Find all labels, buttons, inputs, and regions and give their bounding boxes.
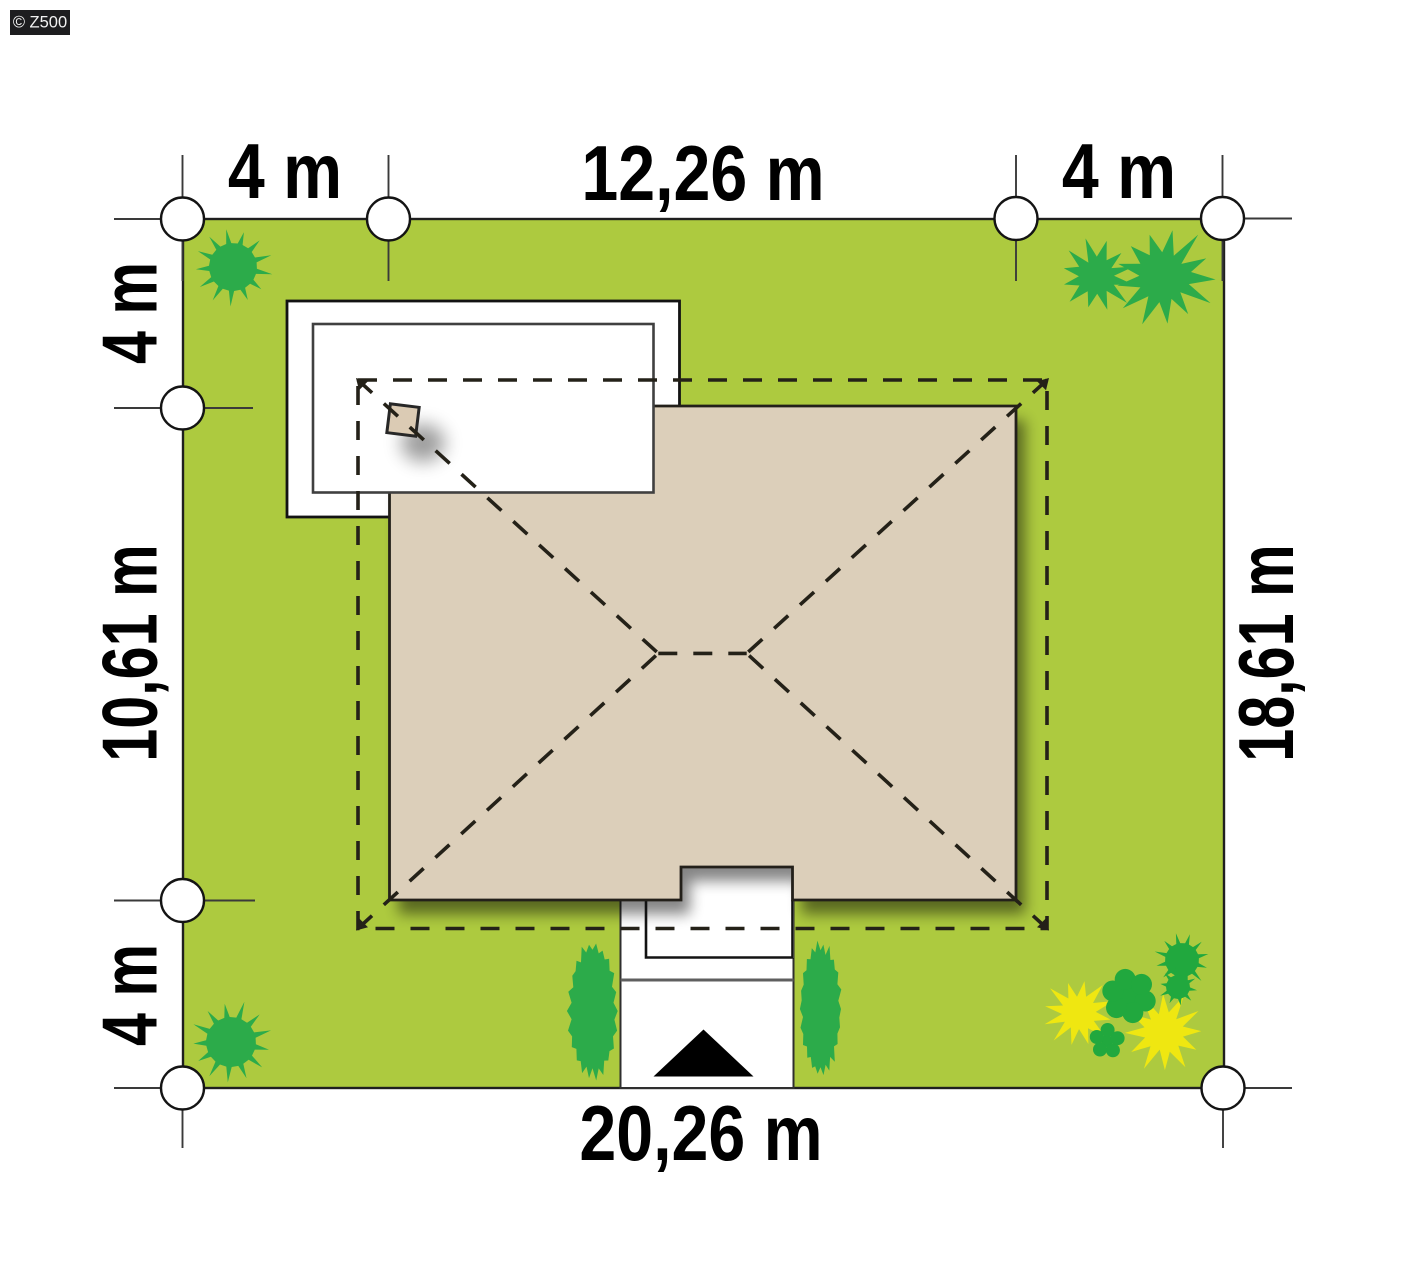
svg-text:© Z500: © Z500 [13,14,67,32]
svg-text:12,26 m: 12,26 m [581,130,824,217]
svg-text:10,61 m: 10,61 m [86,544,174,761]
svg-text:4 m: 4 m [1062,128,1176,215]
svg-text:20,26 m: 20,26 m [579,1090,822,1177]
svg-text:18,61 m: 18,61 m [1222,544,1310,761]
svg-text:4 m: 4 m [86,262,174,364]
svg-text:4 m: 4 m [228,128,342,215]
svg-text:4 m: 4 m [86,944,174,1046]
